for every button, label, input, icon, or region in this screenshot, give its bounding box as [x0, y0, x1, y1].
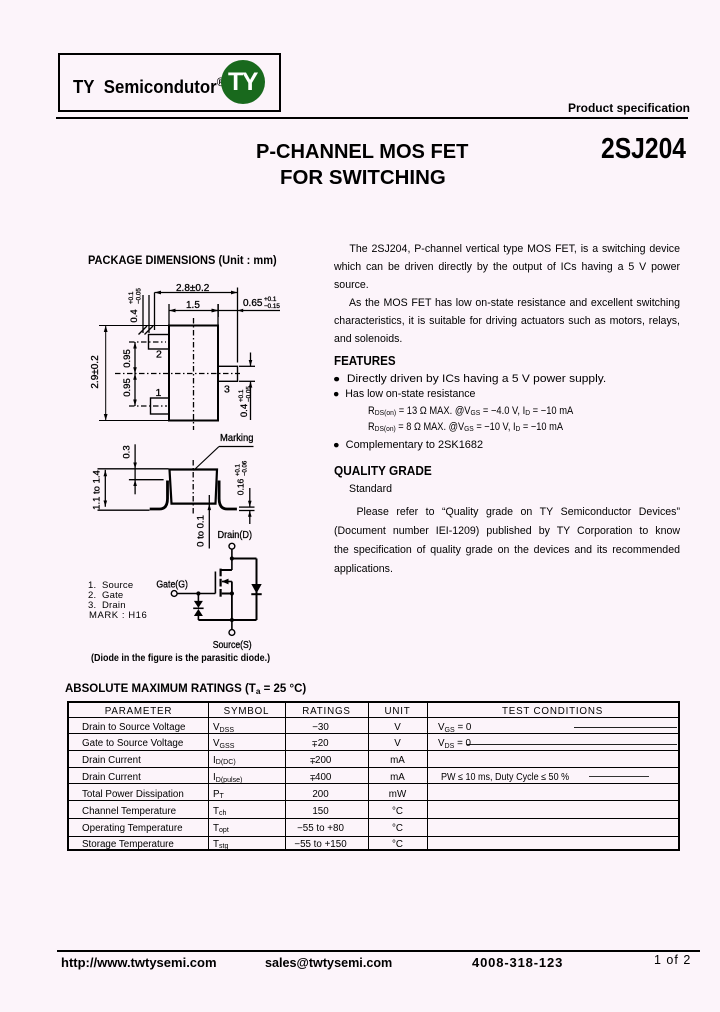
svg-text:3: 3: [224, 384, 230, 396]
svg-text:0.4: 0.4: [129, 309, 140, 322]
svg-text:1.5: 1.5: [186, 300, 200, 311]
svg-text:Source(S): Source(S): [213, 640, 252, 651]
svg-text:0.65: 0.65: [243, 298, 263, 309]
svg-text:Drain(D): Drain(D): [218, 530, 253, 541]
svg-text:Marking: Marking: [220, 433, 254, 444]
svg-text:0.16: 0.16: [236, 478, 246, 495]
svg-text:0.4: 0.4: [239, 404, 250, 417]
svg-text:Gate(G): Gate(G): [156, 580, 188, 591]
svg-text:0.95: 0.95: [122, 349, 133, 368]
svg-text:+0.1: +0.1: [238, 389, 245, 402]
svg-text:1: 1: [156, 387, 162, 399]
svg-text:+0.1: +0.1: [264, 296, 277, 303]
svg-text:−0.06: −0.06: [243, 460, 249, 476]
svg-text:2.9±0.2: 2.9±0.2: [90, 355, 101, 389]
svg-text:−0.15: −0.15: [264, 303, 280, 310]
svg-text:0.3: 0.3: [122, 445, 133, 458]
svg-text:2: 2: [156, 349, 162, 361]
svg-text:0 to 0.1: 0 to 0.1: [196, 515, 207, 547]
svg-text:+0.1: +0.1: [236, 463, 242, 476]
svg-text:−0.05: −0.05: [246, 386, 253, 402]
svg-text:0.95: 0.95: [122, 378, 133, 397]
svg-text:+0.1: +0.1: [128, 291, 135, 304]
svg-text:1.1 to 1.4: 1.1 to 1.4: [92, 470, 103, 510]
svg-text:−0.05: −0.05: [136, 288, 143, 304]
